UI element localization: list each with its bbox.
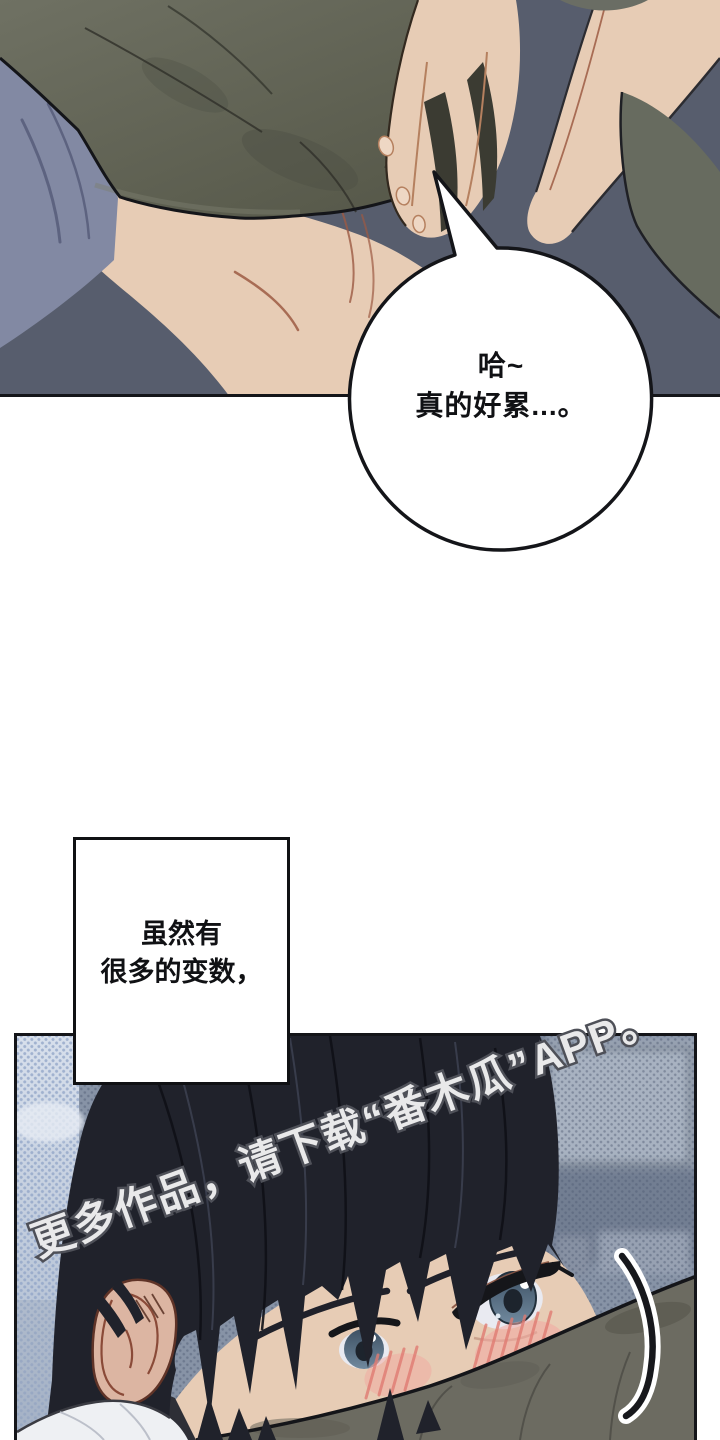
caption-line-1: 虽然有 <box>141 915 222 953</box>
caption-box: 虽然有 很多的变数， <box>73 837 290 1085</box>
caption-line-2: 很多的变数， <box>101 953 263 991</box>
comic-page: 哈~ 真的好累...。 虽然有 很多的变数， 更多作品，请下载“番木瓜”APP。 <box>0 0 720 1440</box>
speech-bubble-text: 哈~ 真的好累...。 <box>351 346 651 426</box>
speech-line-2: 真的好累...。 <box>351 386 651 426</box>
comic-artwork <box>0 0 720 1440</box>
speech-line-1: 哈~ <box>351 346 651 386</box>
